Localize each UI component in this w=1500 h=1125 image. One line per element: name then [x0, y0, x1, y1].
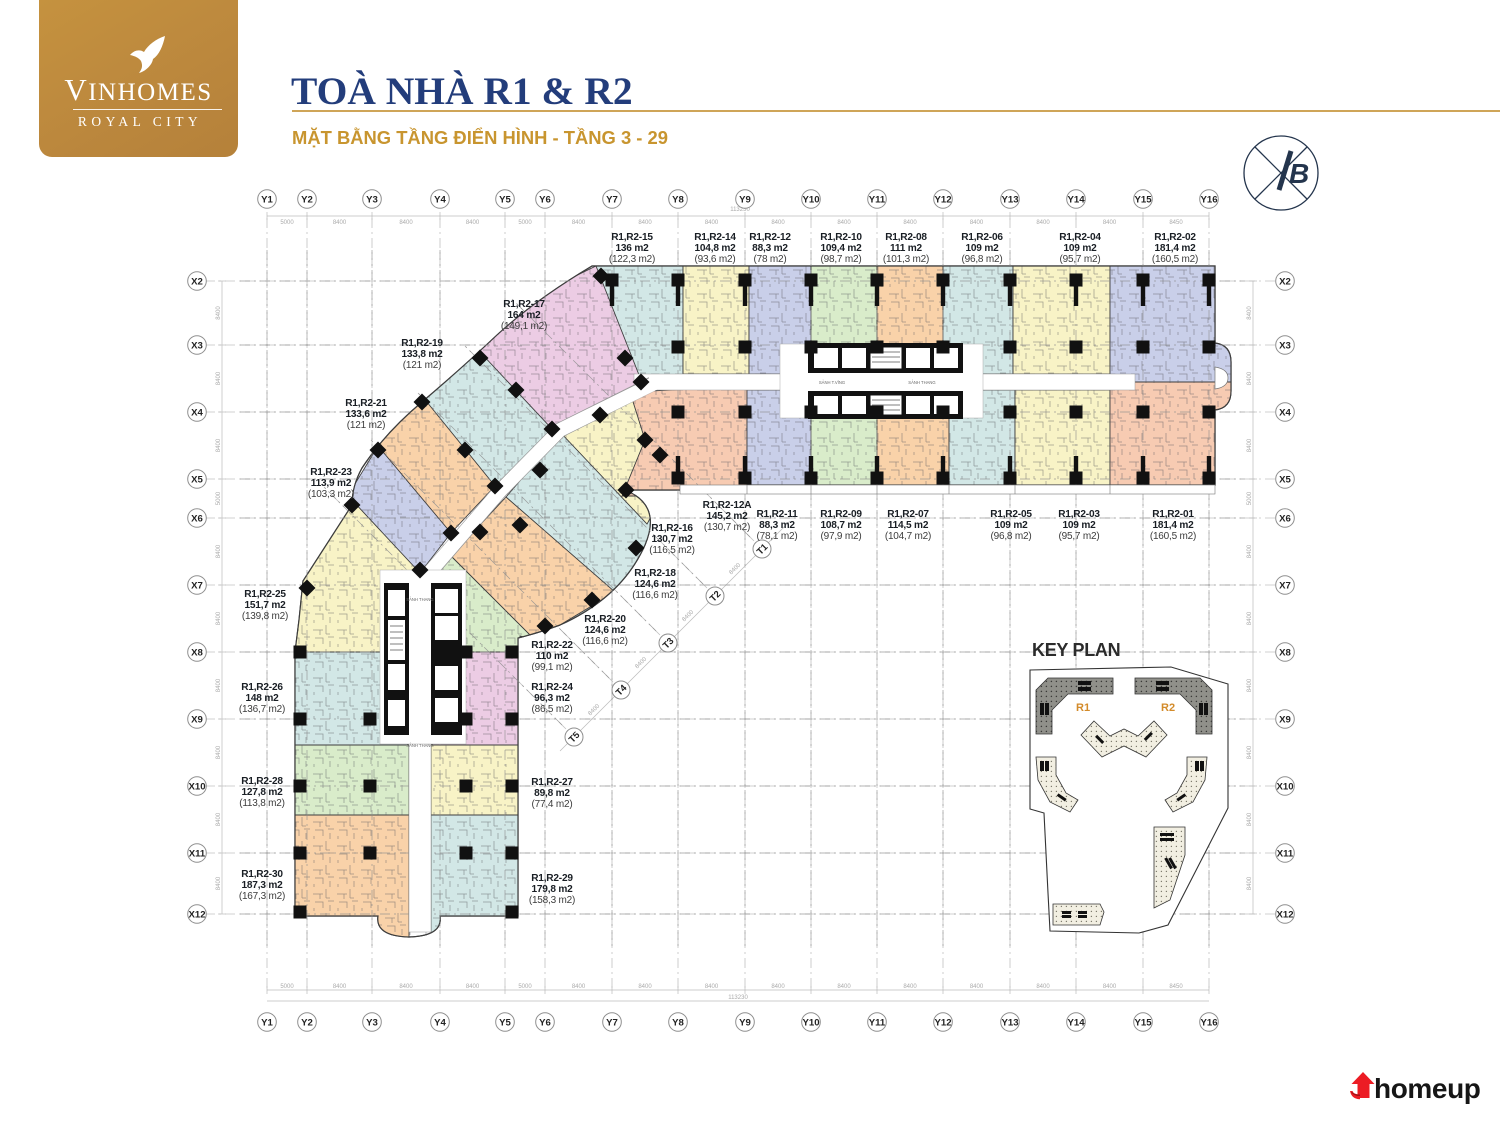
- svg-text:X7: X7: [1279, 580, 1291, 591]
- svg-text:8400: 8400: [216, 306, 222, 320]
- svg-text:X10: X10: [188, 781, 205, 792]
- svg-text:5000: 5000: [518, 984, 532, 990]
- svg-text:R1,R2-15: R1,R2-15: [611, 232, 653, 243]
- svg-text:124,6 m2: 124,6 m2: [634, 579, 676, 590]
- svg-text:R1,R2-07: R1,R2-07: [887, 509, 929, 520]
- svg-text:8400: 8400: [216, 678, 222, 692]
- svg-text:X7: X7: [191, 580, 203, 591]
- svg-text:X9: X9: [191, 714, 203, 725]
- svg-text:113,9 m2: 113,9 m2: [311, 478, 352, 489]
- svg-text:133,8 m2: 133,8 m2: [401, 349, 443, 360]
- svg-text:(116,6 m2): (116,6 m2): [582, 636, 628, 647]
- svg-text:Y15: Y15: [1134, 1017, 1152, 1028]
- svg-text:SẢNH THANG: SẢNH THANG: [406, 597, 433, 602]
- svg-text:R1,R2-21: R1,R2-21: [345, 398, 387, 409]
- svg-text:124,6 m2: 124,6 m2: [584, 625, 626, 636]
- svg-text:R1,R2-14: R1,R2-14: [694, 232, 736, 243]
- svg-text:X11: X11: [1277, 848, 1294, 859]
- svg-text:X3: X3: [191, 340, 203, 351]
- svg-text:8400: 8400: [1247, 544, 1253, 558]
- svg-text:8400: 8400: [638, 220, 652, 226]
- svg-text:Y6: Y6: [539, 1017, 551, 1028]
- svg-text:89,8 m2: 89,8 m2: [534, 788, 570, 799]
- svg-text:Y16: Y16: [1200, 194, 1217, 205]
- svg-text:R1,R2-24: R1,R2-24: [531, 682, 573, 693]
- svg-text:R1,R2-28: R1,R2-28: [241, 776, 283, 787]
- svg-text:8400: 8400: [1103, 984, 1117, 990]
- svg-text:Y12: Y12: [934, 194, 951, 205]
- svg-text:R1,R2-01: R1,R2-01: [1152, 509, 1194, 520]
- svg-text:R1,R2-12A: R1,R2-12A: [703, 500, 753, 511]
- svg-text:X4: X4: [191, 407, 203, 418]
- svg-text:96,3 m2: 96,3 m2: [534, 693, 570, 704]
- svg-text:109 m2: 109 m2: [1062, 520, 1096, 531]
- svg-text:(158,3 m2): (158,3 m2): [529, 895, 575, 906]
- svg-text:8400: 8400: [1036, 220, 1050, 226]
- svg-text:5000: 5000: [518, 220, 532, 226]
- svg-text:R1,R2-09: R1,R2-09: [820, 509, 862, 520]
- svg-text:R1,R2-08: R1,R2-08: [885, 232, 927, 243]
- svg-text:Y12: Y12: [934, 1017, 951, 1028]
- svg-text:Y4: Y4: [434, 194, 446, 205]
- svg-text:113230: 113230: [728, 995, 748, 1001]
- svg-text:Y4: Y4: [434, 1017, 446, 1028]
- svg-text:Y3: Y3: [366, 194, 378, 205]
- svg-text:109 m2: 109 m2: [965, 243, 999, 254]
- svg-text:Y1: Y1: [261, 194, 273, 205]
- svg-text:8400: 8400: [216, 812, 222, 826]
- svg-text:(116,5 m2): (116,5 m2): [649, 545, 695, 556]
- svg-text:8400: 8400: [216, 876, 222, 890]
- svg-text:8400: 8400: [216, 438, 222, 452]
- svg-text:8400: 8400: [333, 984, 347, 990]
- svg-text:X12: X12: [188, 909, 205, 920]
- svg-text:130,7 m2: 130,7 m2: [651, 534, 693, 545]
- svg-text:5000: 5000: [1247, 491, 1253, 505]
- svg-text:R1,R2-16: R1,R2-16: [651, 523, 693, 534]
- svg-text:148 m2: 148 m2: [245, 693, 279, 704]
- svg-text:(121 m2): (121 m2): [347, 420, 385, 431]
- svg-text:homeup: homeup: [1374, 1073, 1480, 1104]
- svg-text:(104,7 m2): (104,7 m2): [885, 531, 931, 542]
- svg-text:127,8 m2: 127,8 m2: [241, 787, 283, 798]
- svg-text:R1,R2-30: R1,R2-30: [241, 869, 283, 880]
- svg-text:88,3 m2: 88,3 m2: [759, 520, 795, 531]
- svg-text:Y6: Y6: [539, 194, 551, 205]
- svg-text:B: B: [1289, 158, 1309, 189]
- svg-text:145,2 m2: 145,2 m2: [706, 511, 748, 522]
- svg-text:8400: 8400: [216, 544, 222, 558]
- svg-text:104,8 m2: 104,8 m2: [694, 243, 736, 254]
- svg-text:X3: X3: [1279, 340, 1291, 351]
- svg-text:R1,R2-22: R1,R2-22: [531, 640, 573, 651]
- svg-text:8400: 8400: [771, 220, 785, 226]
- svg-text:181,4 m2: 181,4 m2: [1152, 520, 1194, 531]
- svg-text:X2: X2: [191, 276, 203, 287]
- svg-text:(121 m2): (121 m2): [403, 360, 441, 371]
- svg-text:8400: 8400: [216, 611, 222, 625]
- svg-text:8400: 8400: [1247, 812, 1253, 826]
- svg-text:136 m2: 136 m2: [615, 243, 649, 254]
- svg-text:8400: 8400: [572, 984, 586, 990]
- svg-text:(160,5 m2): (160,5 m2): [1150, 531, 1196, 542]
- svg-text:8400: 8400: [399, 984, 413, 990]
- svg-text:SẢNH THANG: SẢNH THANG: [406, 743, 433, 748]
- svg-text:(78 m2): (78 m2): [753, 254, 786, 265]
- svg-text:Y3: Y3: [366, 1017, 378, 1028]
- svg-text:110 m2: 110 m2: [536, 651, 569, 662]
- svg-text:X6: X6: [1279, 513, 1291, 524]
- svg-text:SẢNH THANG: SẢNH THANG: [908, 380, 935, 385]
- svg-text:8400: 8400: [903, 984, 917, 990]
- svg-text:Y13: Y13: [1001, 1017, 1018, 1028]
- svg-text:(149,1 m2): (149,1 m2): [501, 321, 547, 332]
- svg-text:8400: 8400: [681, 609, 695, 623]
- svg-text:X5: X5: [191, 474, 203, 485]
- svg-text:187,3 m2: 187,3 m2: [241, 880, 283, 891]
- svg-text:8400: 8400: [638, 984, 652, 990]
- svg-text:8400: 8400: [771, 984, 785, 990]
- svg-text:Y11: Y11: [869, 194, 886, 205]
- svg-text:X11: X11: [189, 848, 206, 859]
- svg-text:8400: 8400: [1247, 611, 1253, 625]
- svg-text:Y2: Y2: [301, 1017, 313, 1028]
- svg-text:5000: 5000: [280, 220, 294, 226]
- svg-text:(86,5 m2): (86,5 m2): [532, 704, 573, 715]
- svg-text:X5: X5: [1279, 474, 1291, 485]
- svg-text:R1,R2-20: R1,R2-20: [584, 614, 626, 625]
- svg-text:R1,R2-29: R1,R2-29: [531, 873, 573, 884]
- svg-text:5000: 5000: [280, 984, 294, 990]
- svg-text:R1,R2-12: R1,R2-12: [749, 232, 791, 243]
- svg-text:R1: R1: [1076, 702, 1090, 714]
- svg-text:(97,9 m2): (97,9 m2): [821, 531, 862, 542]
- svg-text:5000: 5000: [216, 491, 222, 505]
- svg-text:R1,R2-10: R1,R2-10: [820, 232, 862, 243]
- svg-text:8400: 8400: [333, 220, 347, 226]
- svg-text:R1,R2-26: R1,R2-26: [241, 682, 283, 693]
- svg-text:8400: 8400: [705, 220, 719, 226]
- svg-text:109 m2: 109 m2: [1063, 243, 1097, 254]
- svg-text:114,5 m2: 114,5 m2: [888, 520, 929, 531]
- svg-text:R1,R2-18: R1,R2-18: [634, 568, 676, 579]
- svg-text:133,6 m2: 133,6 m2: [345, 409, 387, 420]
- svg-text:8400: 8400: [587, 703, 601, 717]
- svg-text:Y5: Y5: [499, 1017, 511, 1028]
- svg-text:(95,7 m2): (95,7 m2): [1060, 254, 1101, 265]
- svg-text:Y5: Y5: [499, 194, 511, 205]
- svg-text:(167,3 m2): (167,3 m2): [239, 891, 285, 902]
- svg-text:R1,R2-05: R1,R2-05: [990, 509, 1032, 520]
- svg-text:(96,8 m2): (96,8 m2): [991, 531, 1032, 542]
- svg-text:Y13: Y13: [1001, 194, 1018, 205]
- svg-text:109 m2: 109 m2: [994, 520, 1028, 531]
- svg-text:8400: 8400: [1247, 438, 1253, 452]
- svg-text:(101,3 m2): (101,3 m2): [883, 254, 929, 265]
- svg-text:(139,8 m2): (139,8 m2): [242, 611, 288, 622]
- svg-text:8400: 8400: [1247, 306, 1253, 320]
- svg-text:X10: X10: [1276, 781, 1293, 792]
- svg-text:8450: 8450: [1169, 220, 1183, 226]
- svg-text:R1,R2-27: R1,R2-27: [531, 777, 573, 788]
- svg-text:8400: 8400: [728, 562, 742, 576]
- svg-text:R2: R2: [1161, 702, 1175, 714]
- svg-text:X4: X4: [1279, 407, 1291, 418]
- svg-text:(160,5 m2): (160,5 m2): [1152, 254, 1198, 265]
- svg-text:8400: 8400: [634, 656, 648, 670]
- svg-text:Y11: Y11: [869, 1017, 886, 1028]
- svg-text:(99,1 m2): (99,1 m2): [532, 662, 573, 673]
- svg-text:8400: 8400: [466, 984, 480, 990]
- svg-text:R1,R2-02: R1,R2-02: [1154, 232, 1196, 243]
- svg-text:8400: 8400: [1247, 678, 1253, 692]
- svg-text:88,3 m2: 88,3 m2: [752, 243, 788, 254]
- svg-text:Y7: Y7: [606, 1017, 618, 1028]
- svg-text:Y2: Y2: [301, 194, 313, 205]
- svg-text:181,4 m2: 181,4 m2: [1154, 243, 1196, 254]
- svg-text:Y14: Y14: [1067, 194, 1085, 205]
- svg-text:109,4 m2: 109,4 m2: [820, 243, 862, 254]
- svg-text:X12: X12: [1276, 909, 1293, 920]
- svg-text:X6: X6: [191, 513, 203, 524]
- svg-text:R1,R2-06: R1,R2-06: [961, 232, 1003, 243]
- svg-text:X2: X2: [1279, 276, 1291, 287]
- svg-text:151,7 m2: 151,7 m2: [244, 600, 286, 611]
- svg-text:8400: 8400: [216, 371, 222, 385]
- svg-text:Y16: Y16: [1200, 1017, 1217, 1028]
- svg-text:8400: 8400: [399, 220, 413, 226]
- svg-text:R1,R2-04: R1,R2-04: [1059, 232, 1101, 243]
- svg-text:R1,R2-23: R1,R2-23: [310, 467, 352, 478]
- svg-text:Y10: Y10: [802, 1017, 819, 1028]
- svg-text:8400: 8400: [1247, 876, 1253, 890]
- svg-text:SẢNH T.VÎNG: SẢNH T.VÎNG: [819, 380, 845, 385]
- svg-text:(136,7 m2): (136,7 m2): [239, 704, 285, 715]
- svg-text:R1,R2-03: R1,R2-03: [1058, 509, 1100, 520]
- svg-text:8400: 8400: [970, 984, 984, 990]
- svg-text:8400: 8400: [1247, 371, 1253, 385]
- svg-text:X8: X8: [1279, 647, 1291, 658]
- svg-text:Y1: Y1: [261, 1017, 273, 1028]
- svg-text:X9: X9: [1279, 714, 1291, 725]
- svg-text:X8: X8: [191, 647, 203, 658]
- svg-text:KEY PLAN: KEY PLAN: [1032, 640, 1120, 660]
- svg-text:8400: 8400: [572, 220, 586, 226]
- svg-text:R1,R2-11: R1,R2-11: [756, 509, 798, 520]
- svg-text:8400: 8400: [705, 984, 719, 990]
- svg-text:Y7: Y7: [606, 194, 618, 205]
- svg-text:8400: 8400: [1247, 745, 1253, 759]
- svg-text:(77,4 m2): (77,4 m2): [532, 799, 573, 810]
- svg-text:8400: 8400: [216, 745, 222, 759]
- svg-text:8400: 8400: [837, 220, 851, 226]
- svg-text:R1,R2-19: R1,R2-19: [401, 338, 443, 349]
- svg-text:(93,6 m2): (93,6 m2): [695, 254, 736, 265]
- svg-text:8400: 8400: [1103, 220, 1117, 226]
- svg-text:108,7 m2: 108,7 m2: [820, 520, 862, 531]
- svg-text:8400: 8400: [837, 984, 851, 990]
- svg-text:8400: 8400: [903, 220, 917, 226]
- svg-text:Y14: Y14: [1067, 1017, 1085, 1028]
- svg-text:8400: 8400: [1036, 984, 1050, 990]
- svg-text:(95,7 m2): (95,7 m2): [1059, 531, 1100, 542]
- svg-text:R1,R2-25: R1,R2-25: [244, 589, 286, 600]
- svg-text:(116,6 m2): (116,6 m2): [632, 590, 678, 601]
- svg-text:164 m2: 164 m2: [507, 310, 541, 321]
- svg-text:(113,8 m2): (113,8 m2): [239, 798, 285, 809]
- svg-text:Y10: Y10: [802, 194, 819, 205]
- svg-text:Y8: Y8: [672, 1017, 684, 1028]
- svg-text:(96,8 m2): (96,8 m2): [962, 254, 1003, 265]
- svg-text:Y15: Y15: [1134, 194, 1152, 205]
- svg-text:8400: 8400: [970, 220, 984, 226]
- svg-text:(122,3 m2): (122,3 m2): [609, 254, 655, 265]
- svg-text:Y9: Y9: [739, 194, 751, 205]
- svg-text:8450: 8450: [1169, 984, 1183, 990]
- svg-text:(78,1 m2): (78,1 m2): [757, 531, 798, 542]
- svg-text:(98,7 m2): (98,7 m2): [821, 254, 862, 265]
- svg-text:R1,R2-17: R1,R2-17: [503, 299, 545, 310]
- svg-text:111 m2: 111 m2: [890, 243, 923, 254]
- svg-text:8400: 8400: [466, 220, 480, 226]
- svg-text:Y9: Y9: [739, 1017, 751, 1028]
- svg-text:(130,7 m2): (130,7 m2): [704, 522, 750, 533]
- svg-text:179,8 m2: 179,8 m2: [531, 884, 573, 895]
- svg-text:(103,3 m2): (103,3 m2): [308, 489, 354, 500]
- svg-text:Y8: Y8: [672, 194, 684, 205]
